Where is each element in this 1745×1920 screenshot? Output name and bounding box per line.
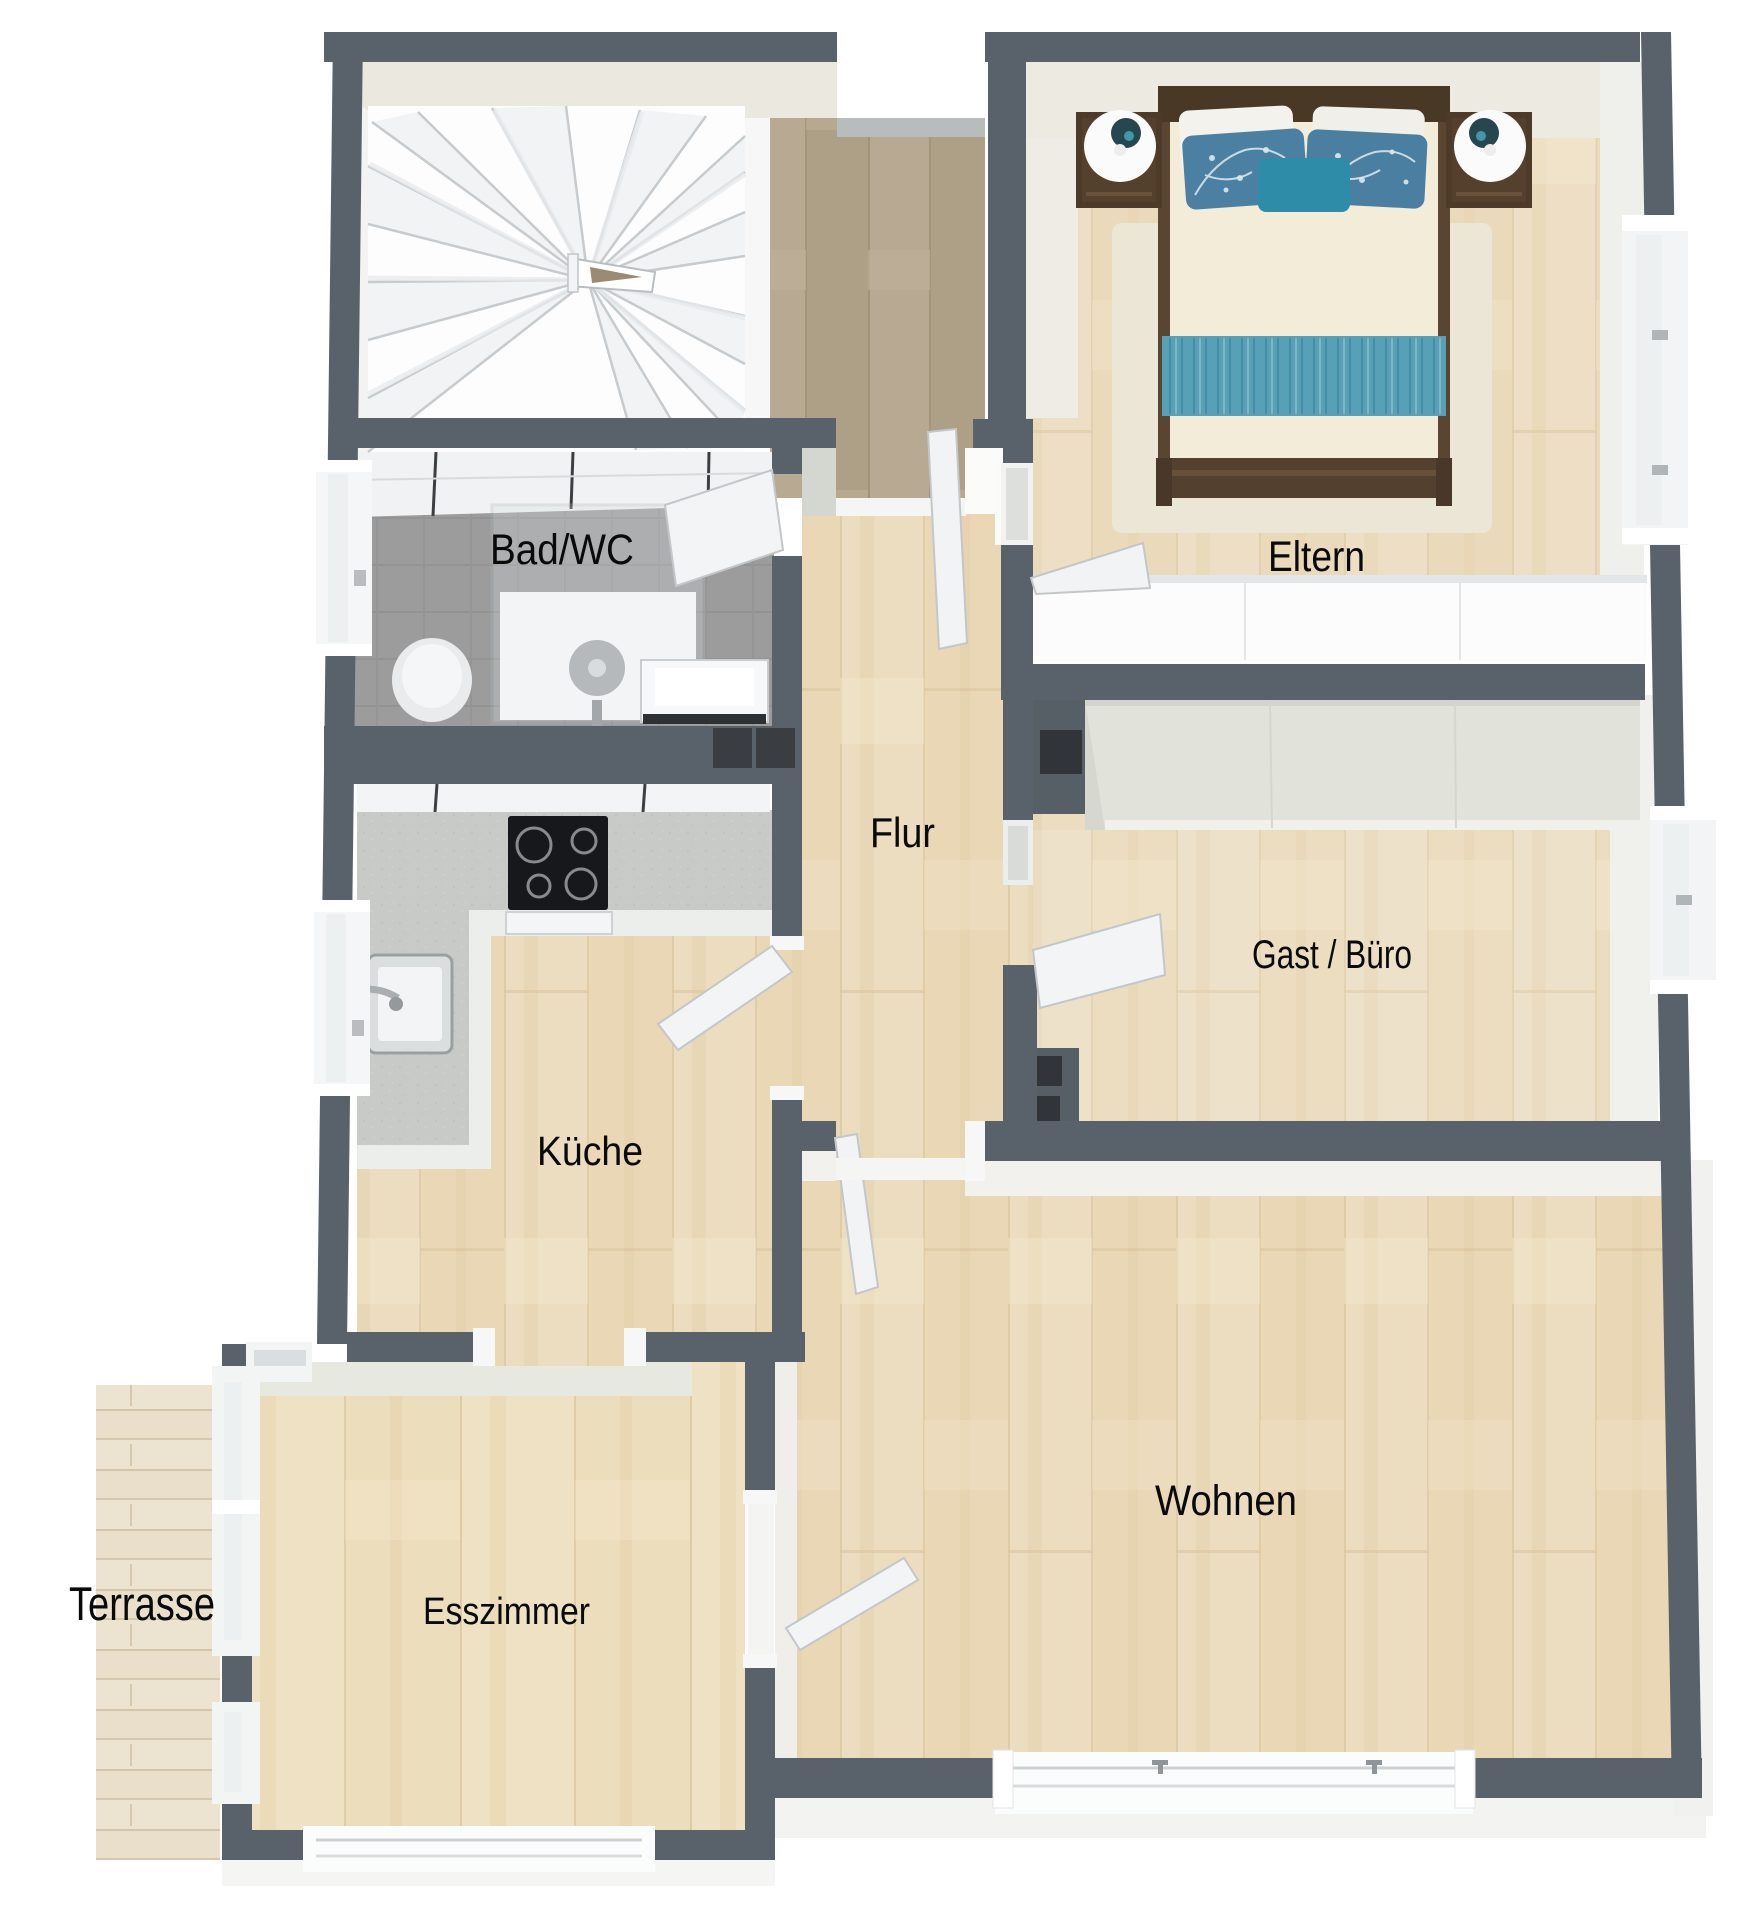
svg-text:Gast / Büro: Gast / Büro	[1252, 933, 1412, 977]
svg-text:Wohnen: Wohnen	[1155, 1477, 1297, 1525]
svg-text:Küche: Küche	[537, 1128, 643, 1174]
svg-text:Esszimmer: Esszimmer	[423, 1591, 590, 1633]
svg-text:Bad/WC: Bad/WC	[490, 526, 634, 574]
svg-text:Flur: Flur	[870, 809, 935, 856]
svg-text:Eltern: Eltern	[1268, 533, 1365, 581]
svg-text:Terrasse: Terrasse	[69, 1577, 215, 1630]
